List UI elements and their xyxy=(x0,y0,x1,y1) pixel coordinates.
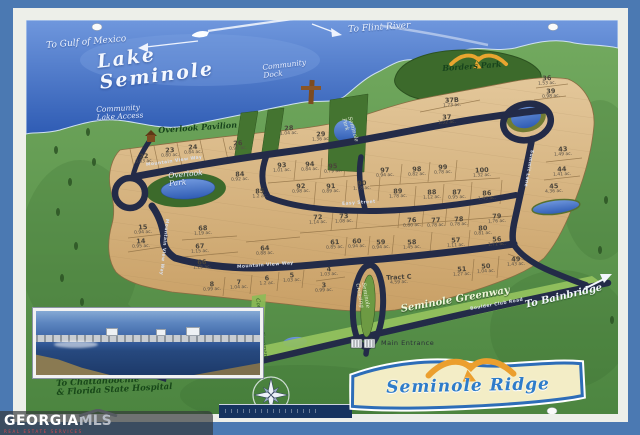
dam-building xyxy=(106,328,118,336)
seminole-ridge-sign: Seminole Ridge xyxy=(348,352,587,417)
shoreline-right xyxy=(194,359,260,375)
georgiamls-watermark: GEORGIAMLS REAL ESTATE SERVICES xyxy=(0,411,213,435)
framed-plat-map: Seminole Ridge Lake SeminoleTo Gulf of M… xyxy=(0,0,640,435)
dam-photo-inset xyxy=(33,308,263,378)
dam-building xyxy=(186,327,200,336)
watermark-tagline: REAL ESTATE SERVICES xyxy=(4,429,213,434)
lake-highlight xyxy=(80,34,320,86)
spillway-foam xyxy=(54,341,98,348)
watermark-brand-primary: GEORGIA xyxy=(4,413,79,429)
roof-icon xyxy=(78,409,118,417)
shoreline-left xyxy=(36,351,110,375)
dam-building xyxy=(156,329,166,336)
info-bar xyxy=(219,404,352,418)
watermark-brand: GEORGIAMLS xyxy=(4,412,213,428)
